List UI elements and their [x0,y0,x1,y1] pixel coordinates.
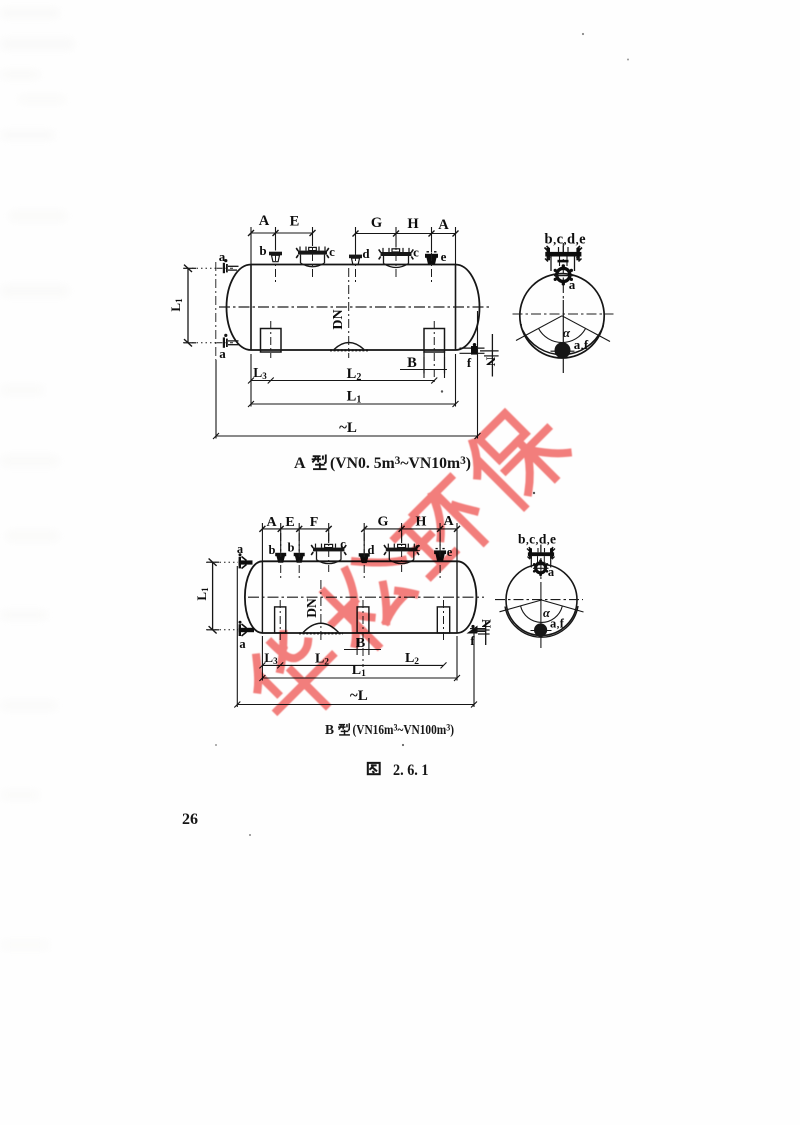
svg-text:E: E [285,515,294,530]
svg-text:f: f [470,634,475,648]
svg-text:f: f [467,355,472,370]
svg-text:DN: DN [331,309,346,329]
svg-text:b: b [269,543,276,557]
svg-text:c: c [340,537,346,551]
svg-text:26: 26 [182,811,198,828]
svg-text:a‚f: a‚f [550,617,565,631]
svg-text:b‚c‚d‚e: b‚c‚d‚e [518,532,556,547]
svg-text:d: d [368,543,375,557]
svg-text:L1: L1 [168,298,184,312]
svg-text:2. 6. 1: 2. 6. 1 [393,762,429,779]
svg-text:L3: L3 [253,365,267,381]
svg-text:a: a [548,565,555,579]
svg-text:B: B [407,355,417,371]
svg-text:L2: L2 [405,651,419,667]
svg-text:b: b [288,541,295,555]
svg-text:~L: ~L [350,688,368,704]
svg-text:N: N [484,357,499,367]
svg-text:E: E [290,214,300,230]
svg-text:DN: DN [304,598,319,618]
svg-text:b‚c‚d‚e: b‚c‚d‚e [544,232,586,248]
svg-text:A: A [259,213,270,229]
svg-text:c: c [413,245,419,260]
svg-text:(VN0. 5m3~VN10m3): (VN0. 5m3~VN10m3) [330,455,471,472]
svg-text:e: e [441,249,447,264]
svg-text:a: a [239,637,246,651]
svg-text:F: F [310,515,319,530]
svg-text:a: a [219,249,226,264]
svg-text:A: A [294,455,306,472]
svg-text:A: A [438,217,449,233]
svg-text:(VN16m3~VN100m3): (VN16m3~VN100m3) [353,722,455,737]
svg-text:a‚f: a‚f [574,337,589,352]
svg-text:d: d [362,246,370,261]
svg-text:L1: L1 [347,389,362,406]
svg-text:a: a [237,542,244,556]
svg-text:α: α [563,325,571,340]
svg-text:a: a [569,277,576,292]
svg-text:b: b [259,243,266,258]
svg-text:c: c [329,244,335,259]
svg-text:H: H [407,216,419,232]
svg-text:L2: L2 [347,366,362,383]
svg-text:G: G [377,515,388,530]
svg-text:L1: L1 [194,587,210,601]
svg-text:a: a [219,346,226,361]
svg-text:~L: ~L [339,420,357,436]
svg-text:N: N [479,619,493,628]
svg-text:B: B [325,722,334,737]
svg-text:G: G [371,215,382,231]
svg-text:A: A [266,515,277,530]
